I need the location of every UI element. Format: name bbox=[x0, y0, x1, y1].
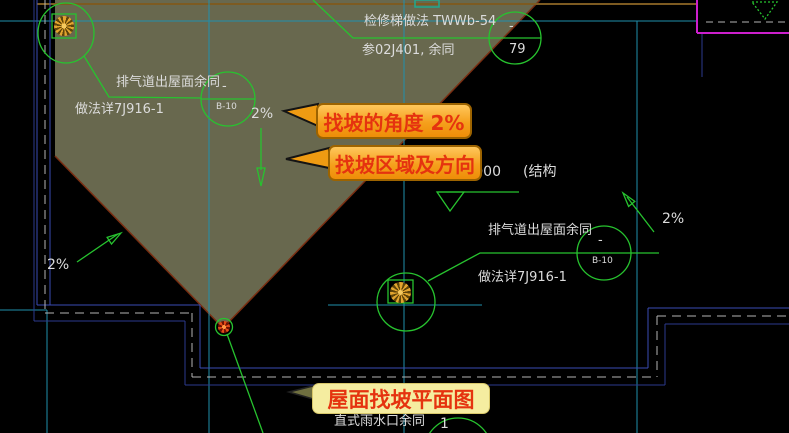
bubble-b10-right-top: - bbox=[598, 234, 603, 248]
ladder-label-1: 检修梯做法 TWWb-54 bbox=[364, 15, 496, 29]
slope-pct-left: 2% bbox=[47, 258, 69, 273]
vent-left-label-1: 排气道出屋面余同 bbox=[116, 76, 220, 90]
detail-bubble-1 bbox=[424, 418, 492, 433]
callout-plan-title: 屋面找坡平面图 bbox=[312, 383, 490, 414]
vent-right-circle bbox=[377, 273, 435, 331]
elevation-suffix: (结构 bbox=[523, 165, 556, 180]
elevation-triangle-icon bbox=[437, 192, 464, 211]
drain-label: 直式雨水口余同 bbox=[334, 415, 425, 429]
ladder-label-2: 参02J401, 余同 bbox=[362, 44, 454, 58]
bubble-79-bottom: 79 bbox=[509, 43, 526, 57]
slope-arrow-left-head bbox=[107, 233, 121, 244]
callout-plan-title-label: 屋面找坡平面图 bbox=[328, 384, 475, 414]
elevation-triangle-top-icon bbox=[752, 2, 777, 19]
bubble-b10-left-bottom: B-10 bbox=[216, 103, 237, 113]
slope-pct-center: 2% bbox=[251, 107, 273, 122]
bubble-b10-right-bottom: B-10 bbox=[592, 257, 613, 267]
rain-drain-icon bbox=[218, 321, 230, 333]
vent-right-label-1: 排气道出屋面余同 bbox=[488, 224, 592, 238]
vent-left-label-2: 做法详7J916-1 bbox=[75, 103, 164, 117]
slope-pct-right: 2% bbox=[662, 212, 684, 227]
callout-tail-plan-title bbox=[289, 386, 313, 399]
callout-slope-area: 找坡区域及方向 bbox=[328, 145, 482, 181]
cad-drawing-canvas[interactable]: 排气道出屋面余同 做法详7J916-1 - B-10 2% 检修梯做法 TWWb… bbox=[0, 0, 789, 433]
drain-leader bbox=[227, 334, 263, 433]
slope-arrow-right-shaft bbox=[627, 197, 654, 232]
slope-arrow-left-shaft bbox=[77, 234, 118, 262]
callout-slope-angle-label: 找坡的角度 2% bbox=[324, 107, 465, 136]
bubble-b10-left-top: - bbox=[222, 80, 227, 94]
exhaust-fan-icon bbox=[390, 282, 411, 303]
callout-slope-area-label: 找坡区域及方向 bbox=[335, 149, 475, 178]
exhaust-fan-icon bbox=[54, 16, 74, 36]
callout-slope-angle: 找坡的角度 2% bbox=[316, 103, 472, 139]
bubble-79-top: - bbox=[509, 20, 514, 34]
bubble-1-value: 1 bbox=[440, 417, 449, 432]
vent-right-label-2: 做法详7J916-1 bbox=[478, 271, 567, 285]
